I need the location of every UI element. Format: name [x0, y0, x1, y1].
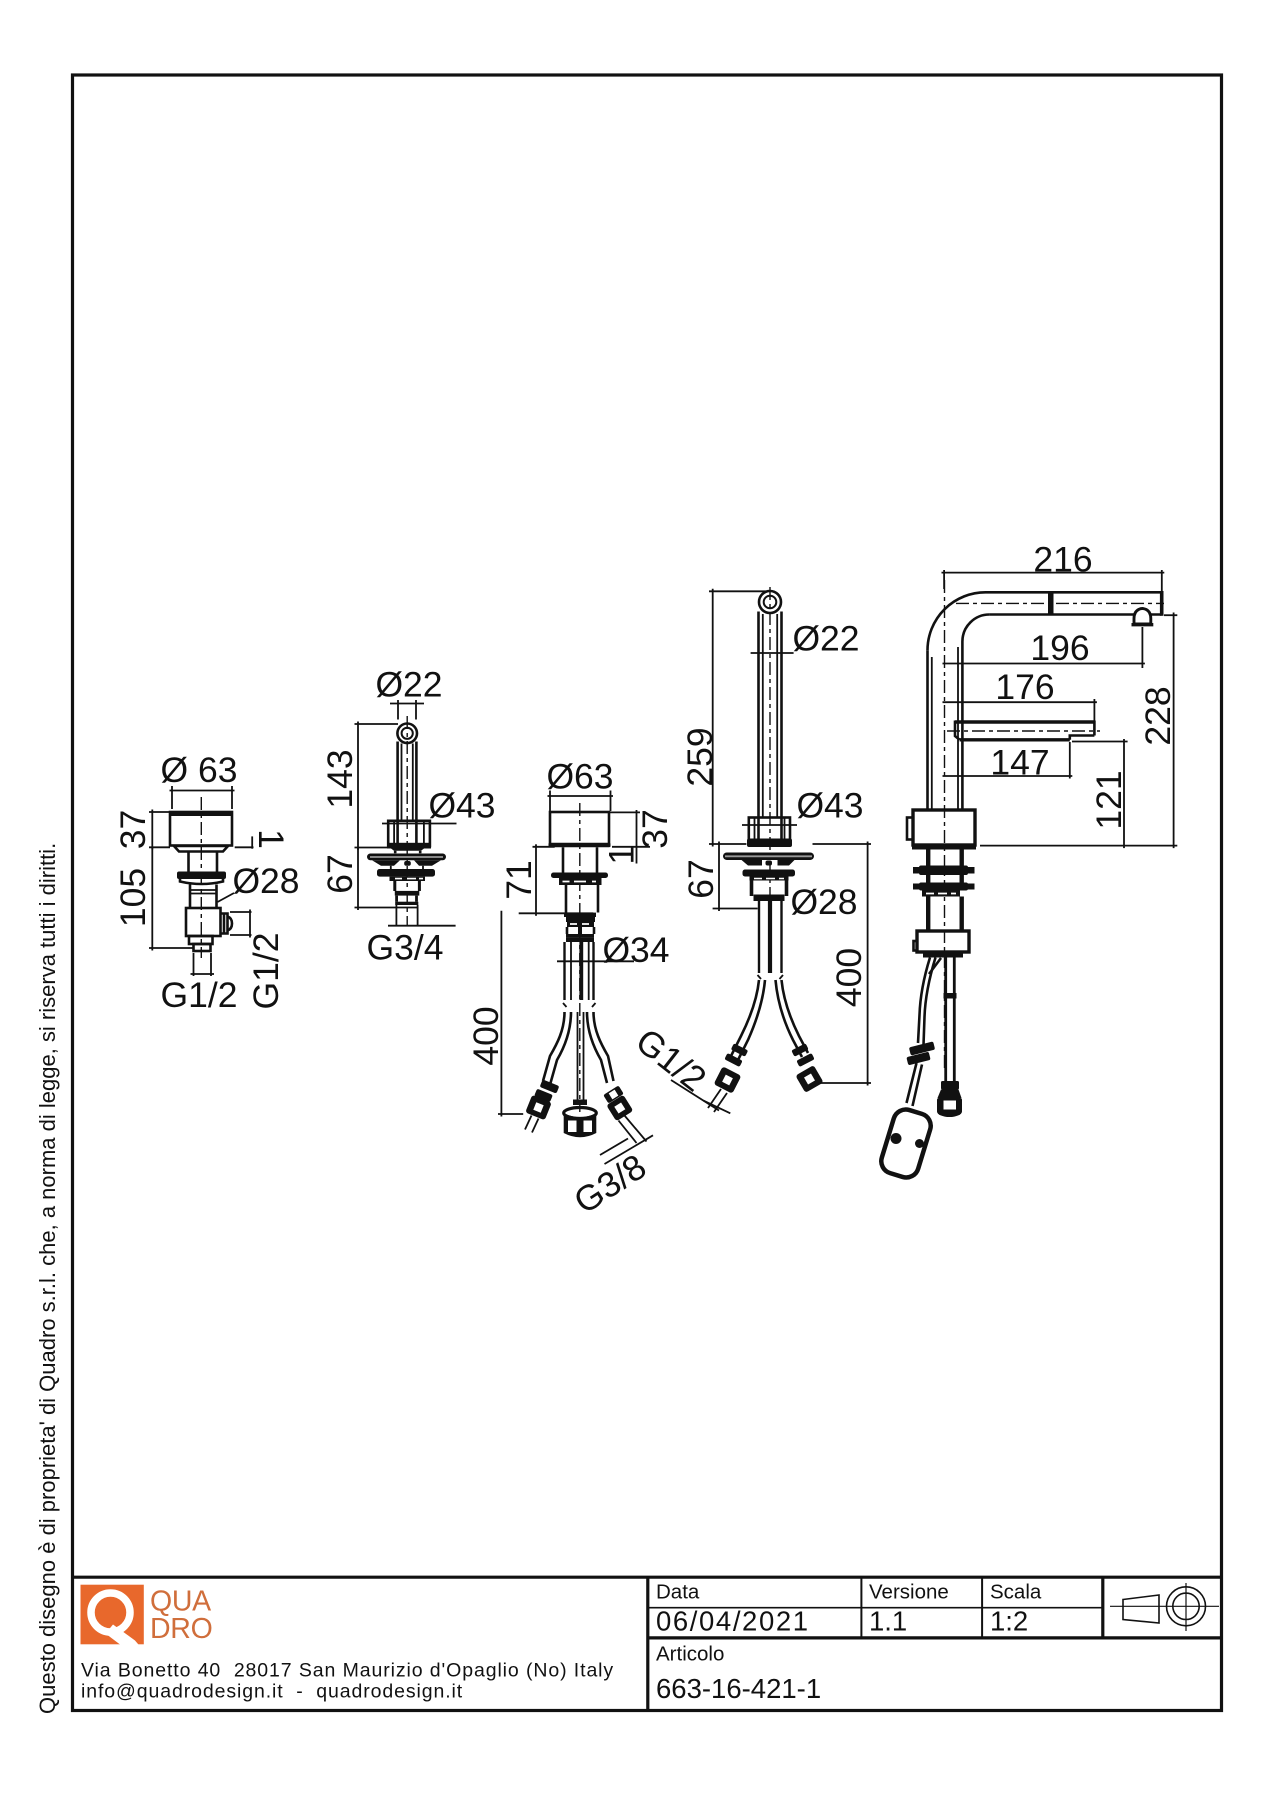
svg-text:196: 196	[1030, 628, 1089, 668]
svg-text:Ø43: Ø43	[796, 786, 863, 826]
svg-text:259: 259	[680, 727, 720, 786]
svg-text:71: 71	[499, 860, 539, 900]
svg-text:G3/4: G3/4	[367, 928, 444, 968]
svg-text:Versione: Versione	[869, 1581, 949, 1604]
svg-text:06/04/2021: 06/04/2021	[656, 1606, 810, 1637]
svg-text:143: 143	[320, 749, 360, 808]
svg-text:663-16-421-1: 663-16-421-1	[656, 1673, 821, 1704]
svg-text:1: 1	[602, 845, 642, 865]
svg-text:Ø28: Ø28	[232, 861, 299, 901]
svg-text:Questo disegno è di proprieta': Questo disegno è di proprieta' di Quadro…	[35, 843, 60, 1714]
svg-text:Via Bonetto 40 28017 San Maur: Via Bonetto 40 28017 San Maurizio d'Opag…	[81, 1660, 614, 1682]
svg-text:G1/2: G1/2	[246, 933, 286, 1010]
svg-text:176: 176	[995, 667, 1054, 707]
svg-text:info@quadrodesign.it - quadr: info@quadrodesign.it - quadrodesign.it	[81, 1681, 463, 1703]
svg-text:Ø 63: Ø 63	[161, 750, 238, 790]
svg-text:400: 400	[466, 1006, 506, 1065]
svg-text:1.1: 1.1	[869, 1606, 907, 1637]
svg-text:Ø63: Ø63	[546, 757, 613, 797]
svg-text:Scala: Scala	[990, 1581, 1042, 1604]
svg-text:67: 67	[320, 854, 360, 894]
svg-text:Ø43: Ø43	[428, 786, 495, 826]
svg-text:1: 1	[251, 829, 291, 849]
svg-text:400: 400	[829, 948, 869, 1007]
svg-text:216: 216	[1033, 540, 1092, 580]
svg-text:121: 121	[1089, 770, 1129, 829]
svg-text:Data: Data	[656, 1581, 700, 1604]
svg-text:1:2: 1:2	[990, 1606, 1028, 1637]
svg-text:DRO: DRO	[150, 1613, 212, 1645]
svg-text:Articolo: Articolo	[656, 1643, 724, 1666]
svg-text:228: 228	[1138, 686, 1178, 745]
svg-text:37: 37	[635, 809, 675, 849]
svg-text:Ø28: Ø28	[790, 882, 857, 922]
svg-text:105: 105	[113, 868, 153, 927]
svg-text:Ø22: Ø22	[792, 619, 859, 659]
svg-text:37: 37	[113, 810, 153, 850]
svg-text:67: 67	[681, 859, 721, 899]
svg-text:Ø22: Ø22	[375, 665, 442, 705]
svg-text:Ø34: Ø34	[602, 930, 669, 970]
svg-text:G1/2: G1/2	[161, 975, 238, 1015]
